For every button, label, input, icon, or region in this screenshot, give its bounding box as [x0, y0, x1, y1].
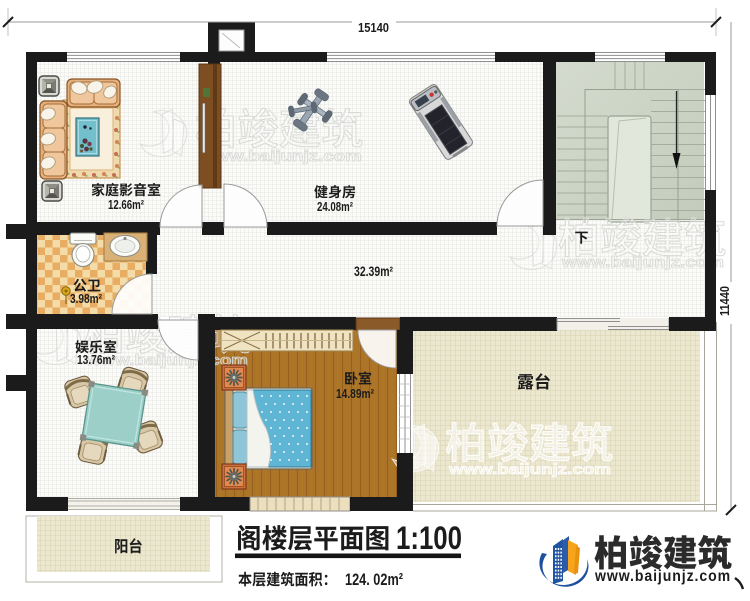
svg-text:3.98m²: 3.98m² [70, 291, 103, 306]
svg-text:14.89m²: 14.89m² [336, 386, 375, 401]
svg-text:32.39m²: 32.39m² [354, 264, 393, 279]
svg-text:124. 02m²: 124. 02m² [345, 571, 403, 589]
svg-text:15140: 15140 [358, 20, 389, 35]
svg-text:www.baijunjz.com: www.baijunjz.com [594, 568, 731, 585]
svg-text:24.08m²: 24.08m² [317, 199, 353, 214]
svg-text:www.baijunjz.com: www.baijunjz.com [448, 461, 611, 478]
svg-text:13.76m²: 13.76m² [77, 352, 116, 367]
svg-text:www.baijunjz.com: www.baijunjz.com [199, 148, 362, 165]
svg-text:1:100: 1:100 [396, 520, 462, 556]
svg-text:www.baijunjz.com: www.baijunjz.com [561, 254, 724, 271]
svg-text:12.66m²: 12.66m² [108, 197, 144, 212]
svg-text:11440: 11440 [717, 286, 732, 316]
